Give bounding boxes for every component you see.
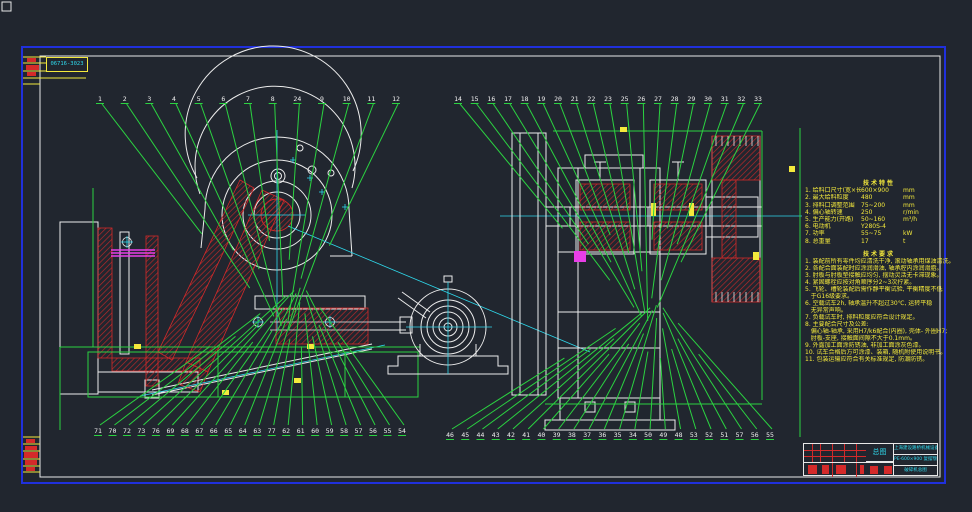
part-number: 32 [737,95,745,103]
part-number: 48 [675,431,683,439]
leader-line [650,318,657,429]
part-number: 57 [736,431,744,439]
part-number: 40 [538,431,546,439]
part-number: 46 [446,431,454,439]
spec-table-title: 技术特性 [805,180,953,187]
part-number: 65 [224,427,232,435]
part-number: 42 [507,431,515,439]
part-number: 72 [123,427,131,435]
part-number: 60 [311,427,319,435]
part-number: 4 [172,95,176,103]
leader-line [289,104,299,260]
spec-value: 50~160 [861,216,903,223]
bearings [580,184,702,250]
part-number: 8 [271,95,275,103]
part-number: 56 [751,431,759,439]
spec-row: 6. 电动机Y280S-4 [805,223,953,230]
part-number: 28 [671,95,679,103]
part-number: 6 [221,95,225,103]
part-number: 52 [705,431,713,439]
spec-row: 3. 排料口调整范围75~200mm [805,202,953,209]
spec-row: 7. 功率55~75kW [805,230,953,237]
part-number: 43 [492,431,500,439]
part-number: 12 [392,95,400,103]
part-number: 19 [537,95,545,103]
part-number: 53 [690,431,698,439]
part-number: 57 [355,427,363,435]
part-number: 61 [297,427,305,435]
spec-row: 2. 最大给料粒度480mm [805,194,953,201]
leader-line [338,342,390,425]
spec-label: 4. 偏心轴转速 [805,209,861,216]
cad-drawing-canvas[interactable]: 1234567824910111214151617181920212223252… [0,0,972,512]
leader-line [681,104,760,262]
part-number: 49 [659,431,667,439]
part-number: 59 [326,427,334,435]
part-number: 2 [123,95,127,103]
part-number: 69 [166,427,174,435]
spec-unit: mm [903,187,953,194]
spec-value: 480 [861,194,903,201]
part-number: 25 [621,95,629,103]
tech-requirements-title: 技术要求 [805,251,953,258]
req-line: 6. 空载试车2h, 轴承温升不超过30℃, 运转平稳 [805,300,953,307]
seal-detail [574,251,586,262]
model-line: PE-600×900 复摆颚式 [894,455,937,466]
part-number: 16 [487,95,495,103]
dim-tick [294,378,301,383]
spec-row: 8. 总重量17t [805,238,953,245]
spec-row: 5. 生产能力(开路)50~160m³/h [805,216,953,223]
part-number: 58 [340,427,348,435]
leader-line [589,310,652,429]
part-number: 55 [384,427,392,435]
req-line: 7. 负载试车时, 排料粒度应符合设计规定。 [805,314,953,321]
spec-label: 1. 给料口尺寸(宽×长) [805,187,861,194]
part-number: 3 [147,95,151,103]
spec-value: Y280S-4 [861,223,903,230]
part-number: 67 [195,427,203,435]
part-number: 54 [398,427,406,435]
req-line: 无异常声响。 [805,307,953,314]
spec-label: 6. 电动机 [805,223,861,230]
part-number: 39 [553,431,561,439]
part-number: 22 [587,95,595,103]
part-number: 10 [343,95,351,103]
leader-line [288,104,373,331]
corner-marker [2,2,11,11]
part-number: 77 [268,427,276,435]
spec-value: 75~200 [861,202,903,209]
req-line: 5. 飞轮、槽轮装配后需作静平衡试验, 平衡精度不低 [805,286,953,293]
spec-label: 8. 总重量 [805,238,861,245]
leader-line [493,104,588,244]
part-number: 23 [604,95,612,103]
leader-line [301,104,349,279]
technical-notes: 技术特性 1. 给料口尺寸(宽×长)600×900mm2. 最大给料粒度480m… [805,180,953,363]
stamp-code: 06716-3023 [46,57,88,72]
part-number: 29 [687,95,695,103]
leader-line [663,308,742,429]
part-number: 70 [109,427,117,435]
drawing-title: 破碎机总图 [894,466,937,477]
part-number: 33 [754,95,762,103]
leader-line [482,349,590,429]
part-number: 20 [554,95,562,103]
spec-value: 55~75 [861,230,903,237]
part-number: 7 [246,95,250,103]
req-line: 2. 各配合面装配时应涂润滑油, 轴承腔内涂润滑脂。 [805,265,953,272]
spec-unit: r/min [903,209,953,216]
req-line: 偏心轴-轴承, 采用H7/k6配合(内圈), 壳体- 外圈H7; [805,328,953,335]
req-line: 于G16级要求。 [805,293,953,300]
part-number: 45 [461,431,469,439]
req-line: 4. 紧固螺栓应按对角顺序分2~3次拧紧。 [805,279,953,286]
dim-tick [753,252,759,260]
part-number: 1 [98,95,102,103]
part-number: 41 [522,431,530,439]
part-number: 26 [637,95,645,103]
spec-value: 600×900 [861,187,903,194]
spec-unit: m³/h [903,216,953,223]
title-block-text-cells: 上海建设路桥机械设备有限公司 PE-600×900 复摆颚式 破碎机总图 [893,444,937,475]
leader-line [672,349,696,429]
title-block: 总图 上海建设路桥机械设备有限公司 PE-600×900 复摆颚式 破碎机总图 [803,443,938,476]
req-line: 3. 肘板与肘板垫接触应均匀, 摆动灵活无卡滞现象。 [805,272,953,279]
spec-table: 1. 给料口尺寸(宽×长)600×900mm2. 最大给料粒度480mm3. 排… [805,187,953,245]
leader-line [652,104,660,240]
spec-unit: mm [903,194,953,201]
leader-line [699,354,757,429]
part-number: 38 [568,431,576,439]
part-number: 55 [766,431,774,439]
leader-line [102,104,202,234]
leader-line [560,104,610,235]
part-number: 17 [504,95,512,103]
leader-line [663,328,681,429]
leader-line [678,323,772,429]
part-number: 76 [152,427,160,435]
spec-value: 250 [861,209,903,216]
part-number: 51 [720,431,728,439]
part-number: 66 [210,427,218,435]
part-number: 62 [282,427,290,435]
part-number: 14 [454,95,462,103]
part-number: 36 [598,431,606,439]
part-number: 9 [320,95,324,103]
leader-line [643,104,647,321]
revision-marks-bottom [23,437,40,472]
req-line: 10. 试车合格后方可涂漆、装箱, 随机附使用说明书。 [805,349,953,356]
leader-line [245,319,287,425]
part-number: 5 [197,95,201,103]
spec-row: 1. 给料口尺寸(宽×长)600×900mm [805,187,953,194]
part-number: 18 [521,95,529,103]
part-number: 34 [629,431,637,439]
leader-line [635,352,648,429]
leader-line [467,328,615,429]
dim-tick [789,166,795,172]
spec-label: 5. 生产能力(开路) [805,216,861,223]
leader-line [513,339,614,429]
part-number: 37 [583,431,591,439]
part-number: 31 [721,95,729,103]
req-line: 9. 外露加工面涂防锈油, 非加工面涂灰色漆。 [805,342,953,349]
pitman-swing-jaw [98,180,368,392]
req-line: 8. 主要配合尺寸及公差: [805,321,953,328]
part-number: 73 [138,427,146,435]
part-number: 15 [471,95,479,103]
req-line: 11. 包装运输应符合有关标准规定, 防潮防锈。 [805,356,953,363]
spec-row: 4. 偏心轴转速250r/min [805,209,953,216]
req-line: 肘板-支座, 接触面间隙不大于0.1mm。 [805,335,953,342]
dimension-lines-right [545,128,800,437]
leader-line [460,104,563,228]
sheet-frame [2,2,945,483]
spec-label: 7. 功率 [805,230,861,237]
part-number: 11 [367,95,375,103]
tech-requirements: 1. 装配前所有零件均应清洗干净, 滚动轴承用煤油清洗。2. 各配合面装配时应涂… [805,258,953,363]
part-number: 71 [94,427,102,435]
title-block-scale-cell: 总图 [866,444,894,462]
part-number: 27 [654,95,662,103]
dim-tick [134,344,141,349]
part-number: 50 [644,431,652,439]
spec-label: 2. 最大给料粒度 [805,194,861,201]
spec-unit: mm [903,202,953,209]
detail-view-pulley [388,276,508,374]
part-number: 68 [181,427,189,435]
dim-tick [620,127,627,132]
leader-line [151,104,233,250]
leader-line [678,339,726,429]
part-number: 24 [293,95,301,103]
part-number: 35 [614,431,622,439]
spec-unit: t [903,238,953,245]
part-number: 21 [571,95,579,103]
part-number: 63 [253,427,261,435]
part-number: 56 [369,427,377,435]
part-number: 64 [239,427,247,435]
spec-value: 17 [861,238,903,245]
spec-unit [903,223,953,230]
req-line: 1. 装配前所有零件均应清洗干净, 滚动轴承用煤油清洗。 [805,258,953,265]
part-number: 44 [477,431,485,439]
company-name: 上海建设路桥机械设备有限公司 [894,444,937,455]
leader-line [660,358,665,429]
spec-label: 3. 排料口调整范围 [805,202,861,209]
leader-line [329,104,398,246]
part-number: 30 [704,95,712,103]
spec-unit: kW [903,230,953,237]
